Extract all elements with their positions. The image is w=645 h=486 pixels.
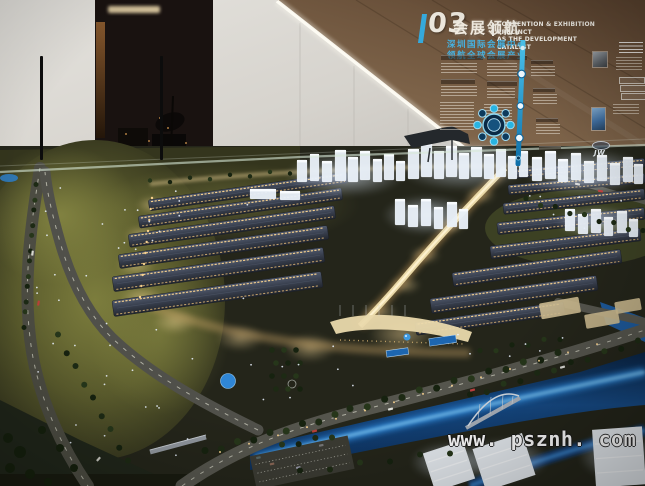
tree — [25, 284, 30, 289]
path-light — [457, 334, 459, 336]
tree — [477, 348, 482, 353]
street-light — [567, 351, 569, 353]
path-light — [36, 292, 38, 294]
illuminated-tower — [434, 151, 444, 179]
tower-cap — [280, 191, 300, 193]
tree — [520, 358, 527, 365]
tree — [503, 366, 510, 373]
tree — [248, 174, 252, 178]
illuminated-tower — [604, 217, 613, 236]
illuminated-tower — [459, 209, 468, 229]
tree — [14, 446, 26, 458]
tree — [451, 377, 458, 384]
tree — [108, 426, 114, 432]
street-light — [451, 385, 453, 387]
path-light — [70, 442, 72, 444]
illuminated-tower — [297, 160, 307, 182]
tower-cap — [447, 202, 457, 204]
tower-cap — [459, 209, 468, 211]
path-light — [36, 287, 38, 289]
path-light — [145, 406, 147, 408]
illuminated-tower — [496, 149, 506, 177]
path-light — [553, 214, 555, 216]
tower-cap — [484, 154, 494, 156]
tree — [29, 233, 34, 238]
tree — [484, 389, 490, 395]
path-light — [135, 248, 137, 250]
plaza-light — [144, 252, 146, 254]
tower-cap — [508, 156, 517, 158]
path-light — [598, 229, 600, 231]
glass-rail-post — [160, 56, 163, 160]
tower-cap — [395, 199, 405, 201]
path-light — [104, 435, 106, 437]
tree — [601, 348, 607, 354]
illuminated-tower — [508, 156, 517, 179]
tower-cap — [604, 217, 613, 219]
illuminated-tower — [610, 163, 620, 185]
path-light — [178, 200, 180, 202]
plaza-light — [139, 296, 141, 298]
tree — [315, 419, 322, 426]
path-light — [539, 350, 541, 352]
tree — [509, 342, 514, 347]
garden-tree — [273, 386, 279, 392]
tree — [517, 378, 523, 384]
tree — [332, 411, 339, 418]
path-light — [124, 209, 126, 211]
tree — [541, 337, 546, 342]
tree — [125, 458, 131, 464]
tree — [523, 196, 528, 201]
illuminated-tower — [623, 157, 633, 182]
path-light — [584, 227, 586, 229]
path-light — [132, 369, 134, 371]
garden-tree — [285, 360, 291, 366]
tree — [168, 180, 172, 184]
path-light — [525, 343, 527, 345]
path-light — [263, 399, 265, 401]
tree — [23, 309, 28, 314]
tower-cap — [597, 155, 607, 157]
tower-cap — [373, 159, 382, 161]
tower-cap — [408, 149, 419, 151]
tree — [228, 173, 232, 177]
illuminated-tower — [434, 207, 443, 229]
exhibition-model-photo: 03 会展领航 CONVENTION & EXHIBITION PRECINCT… — [0, 0, 645, 486]
tree — [70, 464, 78, 472]
garden-tree — [297, 386, 303, 392]
illuminated-tower — [408, 205, 418, 227]
tower-cap — [545, 151, 556, 153]
path-light — [187, 438, 189, 440]
tree — [635, 338, 641, 344]
furniture-silhouette — [118, 128, 148, 146]
tree — [5, 463, 15, 473]
plaza-light — [145, 241, 147, 243]
tree — [347, 405, 354, 412]
tree — [551, 368, 557, 374]
tree — [568, 359, 574, 365]
path-light — [158, 407, 160, 409]
tree — [99, 413, 105, 419]
tower-cap — [584, 161, 594, 163]
illuminated-tower — [597, 155, 607, 181]
street-light — [306, 426, 308, 428]
tower-cap — [629, 219, 638, 221]
tree — [81, 382, 87, 388]
garden-tree — [281, 373, 287, 379]
illuminated-tower — [348, 157, 358, 182]
tree — [31, 207, 36, 212]
tree — [585, 357, 591, 363]
tree — [116, 445, 122, 451]
path-light — [175, 454, 177, 456]
plaza-light — [141, 274, 143, 276]
illuminated-tower — [310, 154, 319, 181]
tree — [357, 460, 363, 466]
illuminated-tower — [519, 151, 528, 177]
path-light — [52, 343, 54, 345]
tree — [534, 370, 540, 376]
tree — [433, 385, 440, 392]
ceiling-light-strip — [108, 6, 160, 13]
path-light — [332, 345, 334, 347]
path-light — [74, 345, 76, 347]
tower-cap — [617, 211, 627, 213]
path-light — [106, 375, 108, 377]
street-light — [393, 401, 395, 403]
tree — [297, 468, 303, 474]
path-light — [337, 368, 339, 370]
path-light — [352, 385, 354, 387]
tree — [44, 478, 52, 486]
tower-cap — [396, 161, 405, 163]
tree — [467, 392, 473, 398]
tree — [234, 438, 241, 445]
path-light — [37, 371, 39, 373]
path-light — [246, 204, 248, 206]
path-light — [547, 227, 549, 229]
path-light — [620, 200, 622, 202]
street-light — [509, 368, 511, 370]
path-light — [289, 397, 291, 399]
path-light — [46, 234, 48, 236]
illuminated-tower — [396, 161, 405, 181]
tree — [416, 386, 423, 393]
tree — [493, 348, 498, 353]
street-light — [422, 393, 424, 395]
tower-cap — [421, 199, 431, 201]
path-light — [104, 383, 106, 385]
tower-cap — [459, 153, 469, 155]
tower-cap — [623, 157, 633, 159]
street-light — [277, 434, 279, 436]
illuminated-tower — [373, 159, 382, 182]
illuminated-tower — [322, 161, 332, 182]
illuminated-tower — [634, 164, 643, 184]
tree — [55, 332, 61, 338]
tree — [417, 452, 423, 458]
tree — [218, 446, 225, 453]
plaza-light — [147, 230, 149, 232]
plaza-light — [140, 285, 142, 287]
garden-tree — [269, 373, 275, 379]
path-light — [118, 247, 120, 249]
watermark-url: www. psznh. com — [448, 427, 636, 451]
glass-rail-post — [40, 56, 43, 160]
tree — [148, 178, 152, 182]
tree — [399, 394, 406, 401]
tree — [364, 403, 371, 410]
tree — [296, 441, 302, 447]
street-light — [596, 343, 598, 345]
tree — [279, 442, 285, 448]
tree — [27, 258, 32, 263]
tree — [90, 395, 96, 401]
tower-cap — [519, 151, 528, 153]
path-light — [469, 353, 471, 355]
round-pond — [221, 374, 236, 389]
tower-cap — [408, 205, 418, 207]
interior-light-dot — [125, 133, 127, 135]
tree — [188, 175, 192, 179]
tree — [387, 459, 393, 465]
path-light — [159, 230, 161, 232]
furniture-silhouette — [152, 134, 186, 148]
tree — [485, 368, 492, 375]
tree — [327, 467, 333, 473]
illuminated-tower — [578, 214, 588, 234]
path-light — [175, 190, 177, 192]
wall-wash-light — [96, 22, 105, 138]
path-light — [562, 337, 564, 339]
blue-sphere-sculpture — [404, 334, 411, 341]
path-light — [85, 275, 87, 277]
garden-tree — [269, 347, 275, 353]
tower-cap — [434, 207, 443, 209]
street-light — [219, 451, 221, 453]
path-light — [59, 187, 61, 189]
tree — [329, 435, 335, 441]
tree — [283, 428, 290, 435]
illuminated-tower — [617, 211, 627, 233]
path-light — [529, 195, 531, 197]
path-light — [155, 329, 157, 331]
street-light — [248, 443, 250, 445]
tree — [64, 350, 70, 356]
tree — [525, 343, 530, 348]
tower-cap — [571, 153, 581, 155]
illuminated-tower — [395, 199, 405, 225]
garden-tree — [293, 373, 299, 379]
doorway-opening — [95, 0, 213, 153]
tower-cap — [348, 157, 358, 159]
tree — [3, 433, 13, 443]
sphere-highlight — [405, 335, 407, 337]
street-light — [364, 410, 366, 412]
path-light — [102, 223, 104, 225]
tower-cap — [591, 209, 601, 211]
tree — [34, 182, 39, 187]
tree — [555, 349, 562, 356]
tree — [38, 426, 46, 434]
tree — [597, 219, 602, 224]
path-light — [156, 405, 158, 407]
tree — [501, 381, 507, 387]
tree — [611, 220, 616, 225]
path-light — [137, 209, 139, 211]
illuminated-tower — [532, 157, 542, 181]
path-light — [578, 196, 580, 198]
tree — [626, 227, 631, 232]
illuminated-tower — [584, 161, 594, 183]
tower-cap — [634, 164, 643, 166]
path-light — [152, 240, 154, 242]
illuminated-tower — [447, 202, 457, 227]
path-light — [123, 242, 125, 244]
path-light — [58, 299, 60, 301]
scale-model-scene — [0, 0, 645, 486]
street-light — [538, 360, 540, 362]
illuminated-tower — [484, 154, 494, 179]
plaza-light — [151, 197, 153, 199]
pond — [0, 174, 18, 182]
illuminated-tower — [545, 151, 556, 179]
street-light — [480, 376, 482, 378]
tree — [26, 274, 31, 279]
tree — [22, 325, 27, 330]
tree — [24, 300, 29, 305]
garden-tree — [285, 386, 291, 392]
tower-cap — [558, 159, 568, 161]
path-light — [509, 355, 511, 357]
tower-cap — [250, 189, 276, 191]
illuminated-tower — [421, 199, 431, 226]
tower-cap — [532, 157, 542, 159]
tree — [73, 363, 79, 369]
path-light — [45, 210, 47, 212]
tree — [618, 346, 624, 352]
tree — [553, 204, 558, 209]
plaza-light — [148, 219, 150, 221]
tower-cap — [471, 147, 482, 149]
garden-tree — [293, 347, 299, 353]
street-light — [335, 418, 337, 420]
path-light — [109, 345, 111, 347]
garden-tree — [273, 360, 279, 366]
tree — [299, 420, 306, 427]
path-light — [250, 364, 252, 366]
illuminated-tower — [384, 154, 394, 180]
illuminated-tower — [459, 153, 469, 179]
tree — [268, 170, 272, 174]
tree — [538, 203, 543, 208]
path-light — [298, 364, 300, 366]
tree — [381, 396, 388, 403]
illuminated-tower — [558, 159, 568, 182]
tower-cap — [610, 163, 620, 165]
tree — [56, 444, 64, 452]
path-light — [106, 323, 108, 325]
tree — [312, 435, 318, 441]
tree — [582, 212, 587, 217]
interior-light-dot — [185, 142, 187, 144]
tower-cap — [297, 160, 307, 162]
tree — [32, 198, 37, 203]
tree — [468, 375, 475, 382]
tree — [250, 437, 257, 444]
path-light — [281, 366, 283, 368]
tree — [208, 177, 212, 181]
plaza-light — [149, 208, 151, 210]
path-light — [178, 215, 180, 217]
tree — [288, 171, 292, 175]
tree — [202, 447, 209, 454]
path-light — [539, 196, 541, 198]
tree — [567, 211, 572, 216]
path-light — [54, 274, 56, 276]
tree — [30, 223, 35, 228]
illuminated-tower — [571, 153, 581, 180]
path-light — [242, 297, 244, 299]
path-light — [191, 358, 193, 360]
path-light — [75, 424, 77, 426]
tree — [447, 451, 453, 457]
plaza-light — [143, 263, 145, 265]
interior-light-dot — [148, 140, 150, 142]
tree — [267, 429, 274, 436]
tower-cap — [322, 161, 332, 163]
interior-light-dot — [167, 127, 169, 129]
tree — [25, 469, 35, 479]
garden-tree — [281, 347, 287, 353]
